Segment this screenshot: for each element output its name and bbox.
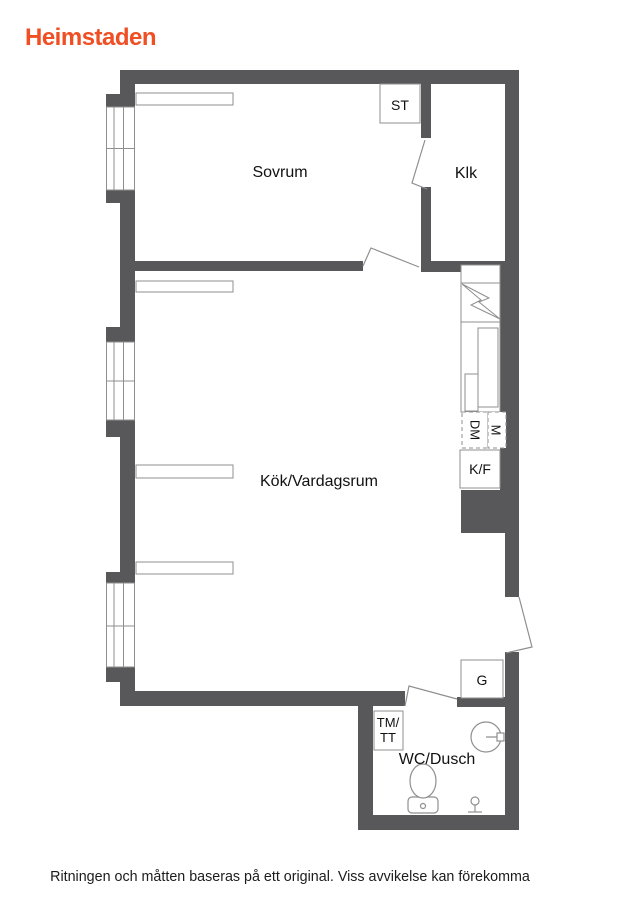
door-swing-icon xyxy=(412,140,427,189)
door-swing-icon xyxy=(405,686,457,706)
disclaimer-text: Ritningen och måtten baseras på ett orig… xyxy=(0,869,580,885)
walls xyxy=(106,70,519,830)
wall-bath-left xyxy=(358,691,373,830)
wall-right-lower xyxy=(505,652,519,830)
wall-left-top xyxy=(120,70,135,97)
wall-corner-block xyxy=(461,490,519,533)
room-label-closet: Klk xyxy=(455,165,478,182)
window-icon xyxy=(107,583,135,667)
sink-icon xyxy=(471,722,504,752)
room-label-bathroom: WC/Dusch xyxy=(399,751,475,768)
label-fridge-freezer: K/F xyxy=(469,461,491,477)
window-icon xyxy=(107,342,135,420)
room-label-bedroom: Sovrum xyxy=(252,164,307,181)
wall-bedroom-divider xyxy=(135,261,363,271)
floorplan-drawing: Sovrum Klk ST Kök/Vardagsrum K/F G TM/ T… xyxy=(0,0,636,900)
wall-window1-cap-top xyxy=(106,94,135,107)
wall-left-mid1 xyxy=(120,203,135,327)
label-wardrobe: G xyxy=(477,672,488,688)
floor-drain-icon xyxy=(468,797,482,812)
wall-top xyxy=(120,70,519,84)
wall-window1-cap-bottom xyxy=(106,190,135,203)
wall-window3-cap-bottom xyxy=(106,667,135,682)
fixture-boxes xyxy=(374,84,506,750)
label-dishwasher: DM xyxy=(468,420,483,440)
radiator-icon xyxy=(136,465,233,478)
wall-window3-cap-top xyxy=(106,572,135,583)
label-washer-line2: TT xyxy=(380,730,396,745)
wall-closet-lower xyxy=(421,187,431,271)
counter-inner-small xyxy=(465,374,478,411)
counter-inner xyxy=(478,328,498,407)
counter-cell xyxy=(461,265,500,283)
radiator-icon xyxy=(136,562,233,574)
label-washer-line1: TM/ xyxy=(377,715,400,730)
wall-left-mid2 xyxy=(120,437,135,572)
wall-bath-bottom xyxy=(358,815,519,830)
door-swing-icon xyxy=(363,248,419,267)
toilet-icon xyxy=(408,764,438,813)
label-appliance-m: M xyxy=(489,425,504,436)
label-storage: ST xyxy=(391,97,409,113)
wall-window2-cap-top xyxy=(106,327,135,342)
radiators xyxy=(136,93,233,574)
window-icon xyxy=(107,107,135,190)
door-swing-icon xyxy=(506,597,532,653)
wall-closet-upper xyxy=(421,84,431,138)
wall-window2-cap-bottom xyxy=(106,420,135,437)
room-label-kitchen-living: Kök/Vardagsrum xyxy=(260,473,378,490)
kitchen-counter xyxy=(461,265,500,412)
radiator-icon xyxy=(136,281,233,292)
radiator-icon xyxy=(136,93,233,105)
